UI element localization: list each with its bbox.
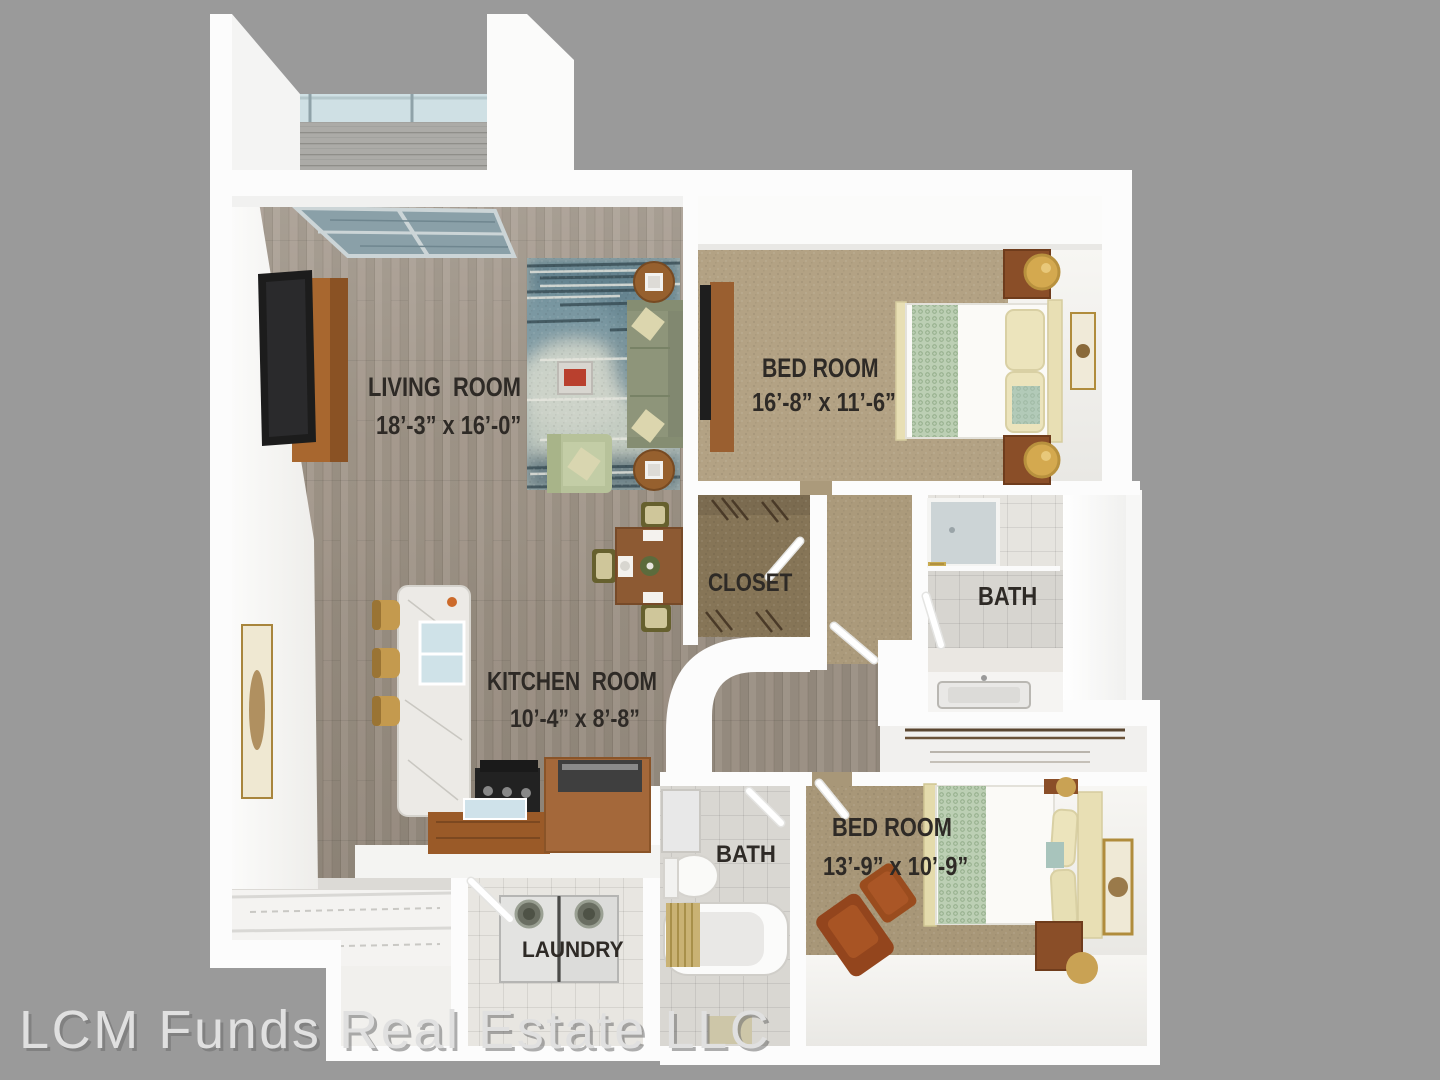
svg-text:LCM Funds Real Estate LLC: LCM Funds Real Estate LLC (19, 1000, 771, 1060)
svg-text:10’-4” x 8’-8”: 10’-4” x 8’-8” (510, 704, 640, 732)
svg-text:KITCHEN ROOM: KITCHEN ROOM (487, 668, 657, 697)
svg-text:LIVING ROOM: LIVING ROOM (368, 373, 521, 403)
svg-text:BATH: BATH (716, 840, 776, 867)
svg-text:BATH: BATH (978, 582, 1037, 611)
svg-text:16’-8” x 11’-6”: 16’-8” x 11’-6” (752, 388, 896, 417)
svg-text:BED ROOM: BED ROOM (832, 813, 952, 842)
svg-text:18’-3” x 16’-0”: 18’-3” x 16’-0” (376, 411, 521, 440)
svg-text:CLOSET: CLOSET (708, 568, 792, 596)
svg-text:13’-9” x 10’-9”: 13’-9” x 10’-9” (823, 852, 968, 881)
svg-text:LAUNDRY: LAUNDRY (522, 938, 624, 963)
svg-text:BED ROOM: BED ROOM (762, 354, 879, 384)
